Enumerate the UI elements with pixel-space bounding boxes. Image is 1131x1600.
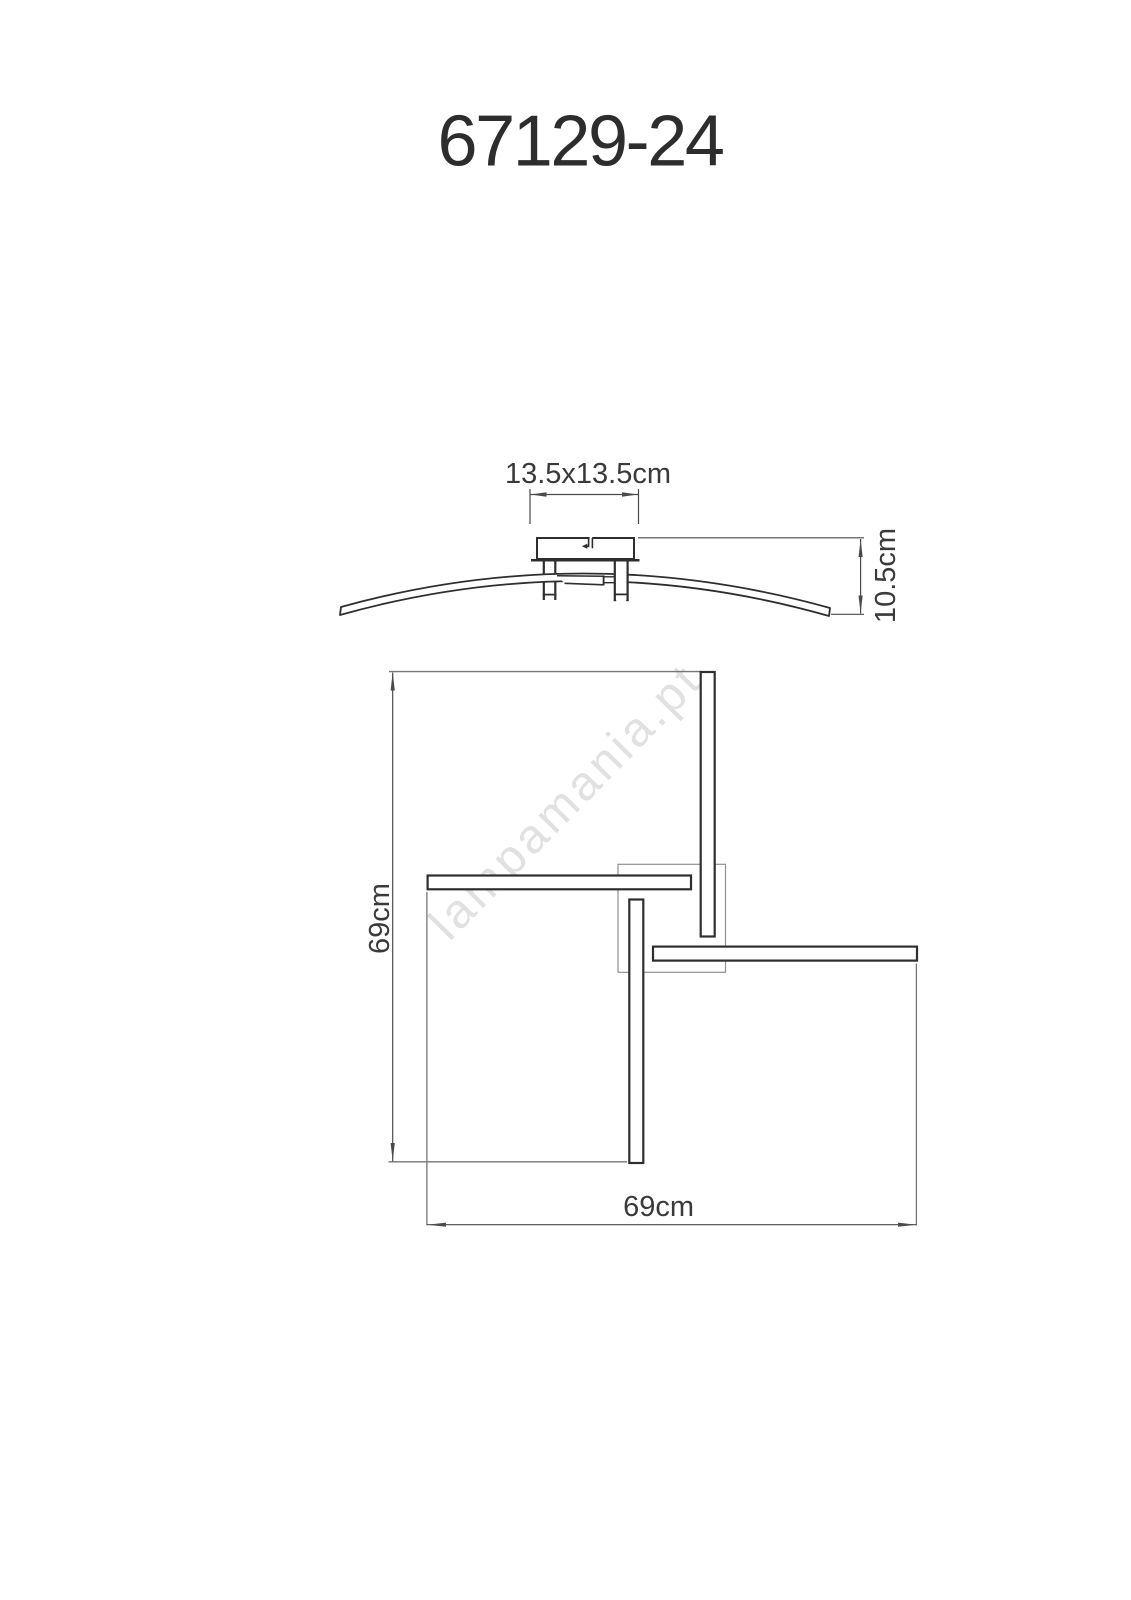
svg-text:69cm: 69cm — [623, 1191, 694, 1223]
svg-text:10.5cm: 10.5cm — [870, 528, 902, 623]
svg-text:13.5x13.5cm: 13.5x13.5cm — [505, 458, 671, 490]
svg-text:69cm: 69cm — [364, 883, 396, 954]
svg-text:67129-24: 67129-24 — [437, 102, 722, 182]
